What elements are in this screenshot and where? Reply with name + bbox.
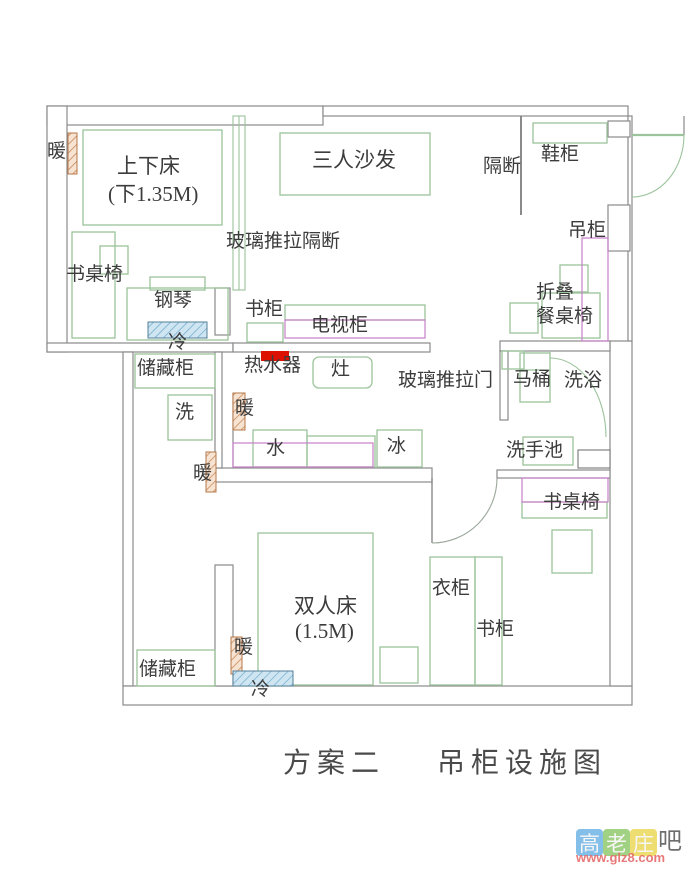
bathroom-cabinet	[578, 450, 610, 468]
wall-bathroom-top	[500, 341, 610, 351]
entry-door-jamb-bottom	[608, 205, 630, 251]
watermark: 吧 高老庄 www.glz8.com	[576, 829, 696, 865]
wall-column-2	[215, 565, 233, 686]
stove	[313, 357, 372, 388]
dining-chair-2	[510, 303, 538, 333]
nightstand	[380, 647, 418, 683]
radiator-3	[206, 452, 216, 492]
drawing-title-scheme: 方案二	[283, 741, 385, 781]
wall-bathroom-bottom	[497, 470, 610, 478]
wall-corridor	[215, 468, 432, 482]
storage-cabinet-2	[137, 650, 215, 686]
water-heater	[261, 351, 289, 361]
wall-bottom	[123, 686, 632, 705]
radiator-1	[68, 133, 77, 174]
wall-bathroom-left	[500, 351, 508, 420]
walls	[47, 106, 684, 705]
kitchen-counter	[307, 436, 375, 467]
hanging-cabinet-tv	[285, 320, 425, 338]
tv-cabinet	[285, 305, 425, 320]
wall-left-upper	[47, 106, 67, 352]
radiator-4	[231, 637, 242, 674]
dining-chair-1	[560, 265, 588, 292]
radiator-2	[233, 393, 245, 430]
wall-top-right	[323, 106, 628, 116]
shower-door-swing-arc	[550, 358, 606, 437]
desk-chair-2	[552, 530, 592, 573]
double-bed	[258, 533, 373, 685]
drawing-title: 方案二 吊柜设施图	[283, 741, 607, 781]
wardrobe	[430, 557, 475, 685]
wall-left-lower	[123, 352, 133, 686]
bookcase-2	[475, 557, 502, 685]
wall-top-left	[47, 106, 323, 125]
hanging-cabinets	[233, 238, 608, 502]
sofa	[280, 133, 430, 195]
entry-door-jamb-top	[608, 121, 630, 137]
desk-2	[522, 502, 607, 518]
furniture	[72, 123, 607, 686]
desk-1	[72, 232, 115, 338]
hanging-cabinet-study	[522, 478, 608, 502]
storage-cabinet-1	[135, 354, 215, 388]
entry-door-swing-arc	[632, 135, 684, 197]
kitchen-sink	[253, 430, 307, 467]
wash-basin	[523, 437, 573, 465]
wall-kitchen-mid	[215, 352, 222, 468]
wall-right-lower	[610, 341, 632, 686]
bunk-bed	[83, 130, 222, 225]
wall-bedroom1-bottom	[47, 343, 233, 352]
bookcase-1	[247, 323, 283, 342]
folding-dining-table	[542, 293, 600, 338]
washing-machine	[168, 395, 212, 440]
fridge	[377, 430, 422, 467]
drawing-title-subject: 吊柜设施图	[437, 741, 607, 781]
cold-unit-1	[148, 322, 207, 338]
desk-chair-1	[100, 246, 128, 274]
shoe-cabinet	[533, 123, 607, 143]
hanging-cabinet-dining	[582, 238, 608, 341]
floor-plan-page: 暖上下床(下1.35M)三人沙发隔断鞋柜玻璃推拉隔断吊柜书桌椅钢琴书柜电视柜折叠…	[0, 0, 700, 875]
study-door-swing-arc	[432, 478, 497, 543]
wall-kitchen-top	[233, 343, 430, 352]
cold-unit-2	[233, 671, 293, 686]
hanging-cabinet-kitchen	[233, 443, 373, 467]
